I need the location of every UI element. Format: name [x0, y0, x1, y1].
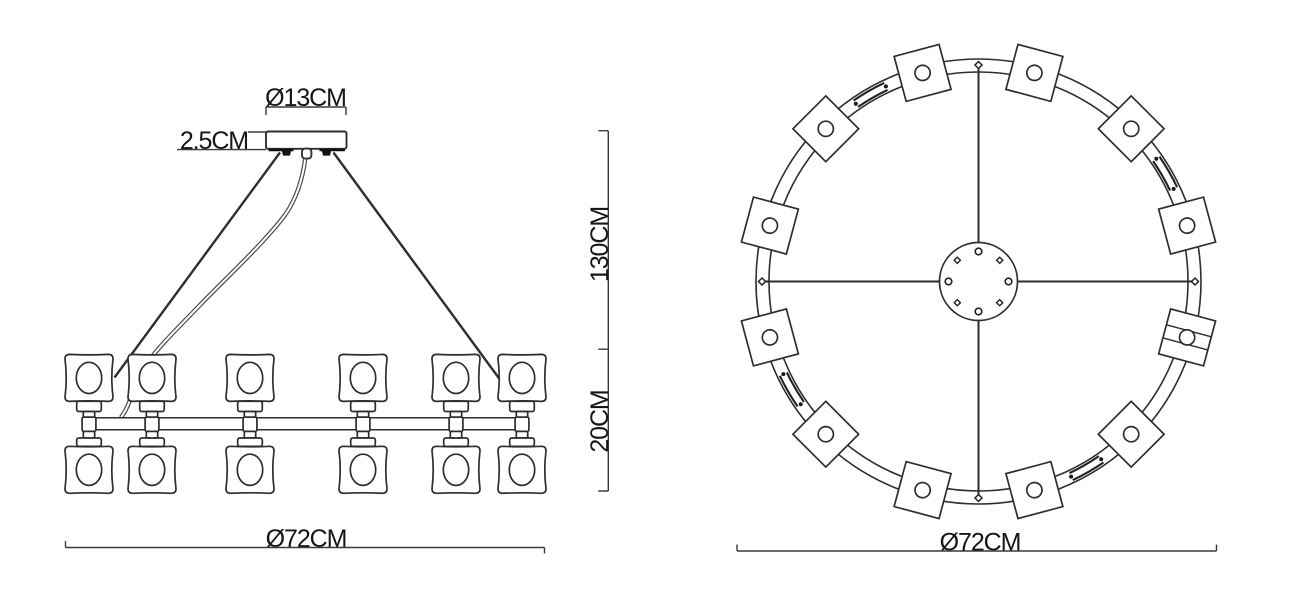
- svg-text:Ø72CM: Ø72CM: [940, 529, 1021, 557]
- svg-text:Ø72CM: Ø72CM: [266, 525, 347, 553]
- svg-text:20CM: 20CM: [586, 390, 614, 452]
- svg-text:Ø13CM: Ø13CM: [265, 84, 346, 112]
- svg-text:2.5CM: 2.5CM: [180, 127, 248, 155]
- svg-text:130CM: 130CM: [586, 207, 614, 282]
